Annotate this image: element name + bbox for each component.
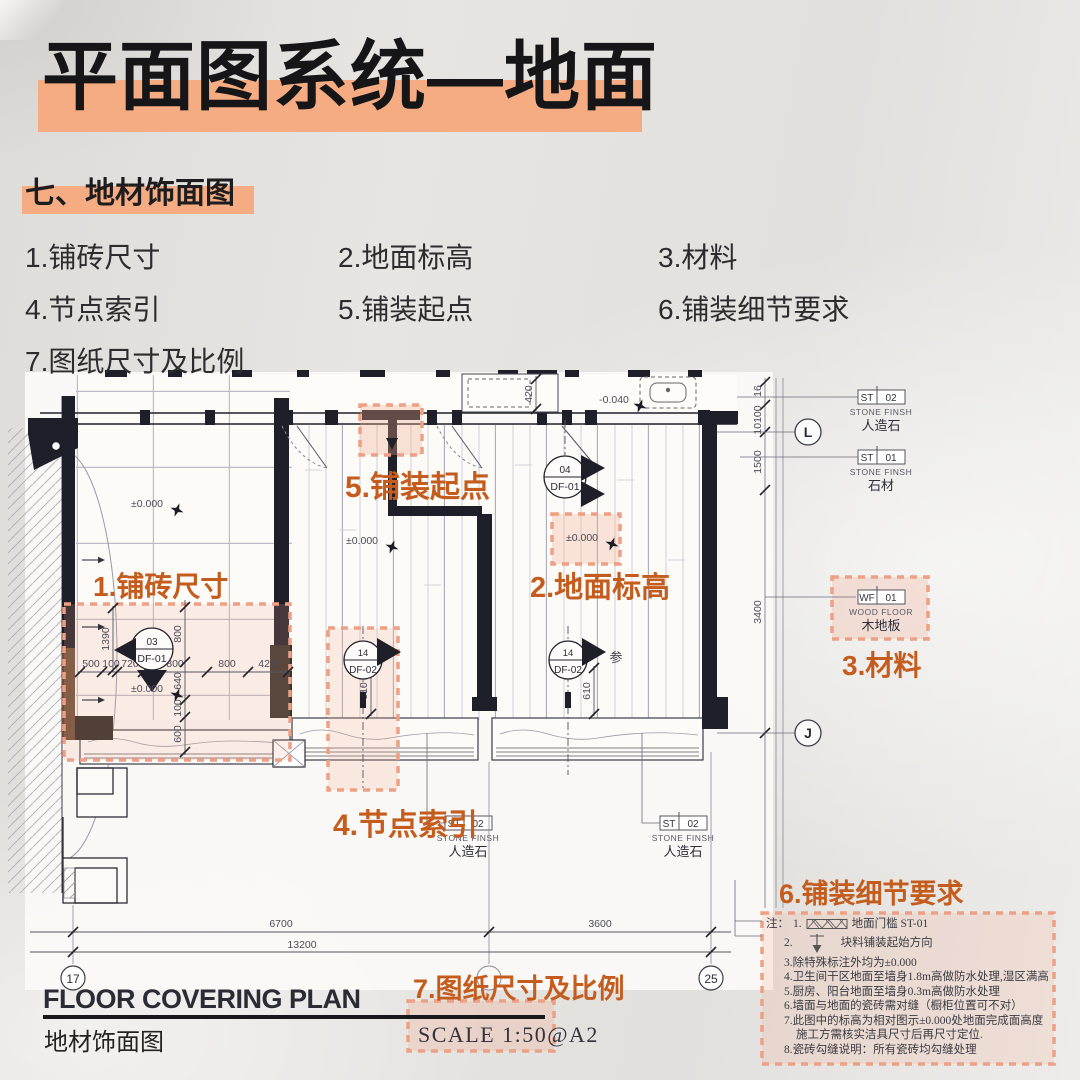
note-line: 5.厨房、阳台地面至墙身0.3m高做防水处理 [784, 985, 1054, 1000]
svg-text:1500: 1500 [752, 450, 764, 474]
svg-text:6700: 6700 [269, 918, 293, 930]
drawing-scale: SCALE 1:50@A2 [418, 1022, 599, 1048]
svg-text:石材: 石材 [868, 478, 894, 493]
door-pivot [52, 442, 61, 451]
note-line: 8.瓷砖勾缝说明：所有瓷砖均勾缝处理 [784, 1043, 1054, 1058]
svg-text:DF-01: DF-01 [137, 653, 166, 665]
note-item-1: 注： 1. 地面门槛 ST-01 [766, 917, 1054, 932]
slide: { "colors": { "highlight": "#f6ac82", "a… [0, 0, 1080, 1080]
svg-text:100: 100 [172, 699, 184, 717]
svg-text:02: 02 [687, 819, 699, 830]
svg-text:STONE FINSH: STONE FINSH [652, 833, 715, 843]
note-1-text: 地面门槛 ST-01 [852, 917, 929, 932]
svg-text:800: 800 [172, 625, 184, 643]
note-2-text: 块料铺装起始方向 [841, 936, 933, 951]
tag-st01: ST 01 STONE FINSH 石材 [850, 446, 913, 493]
svg-text:16: 16 [752, 385, 764, 397]
paving-direction-arrow-icon [797, 933, 837, 955]
legend-item-7: 7.图纸尺寸及比例 [25, 340, 244, 380]
annotation-material: 3.材料 [842, 644, 921, 684]
svg-text:L: L [804, 424, 813, 440]
legend-item-2: 2.地面标高 [338, 236, 473, 276]
svg-text:DF-02: DF-02 [349, 665, 377, 676]
svg-text:3600: 3600 [588, 918, 612, 930]
svg-text:10100: 10100 [752, 405, 764, 434]
svg-text:25: 25 [704, 972, 718, 986]
annotation-paving-start: 5.铺装起点 [345, 462, 490, 506]
annotation-sheet-scale: 7.图纸尺寸及比例 [413, 967, 625, 1006]
svg-text:01: 01 [885, 453, 897, 464]
note-line-continuation: 施工方需核实洁具尺寸后再尺寸定位. [796, 1028, 1054, 1043]
svg-text:14: 14 [563, 648, 574, 659]
svg-text:640: 640 [172, 672, 184, 690]
svg-text:人造石: 人造石 [663, 844, 702, 859]
sill-right [492, 718, 703, 760]
svg-text:WF: WF [859, 593, 875, 604]
note-line: 7.此图中的标高为相对图示±0.000处地面完成面高度 [784, 1014, 1054, 1029]
note-line: 4.卫生间干区地面至墙身1.8m高做防水处理,湿区满高 [784, 970, 1054, 985]
section-title: 七、地材饰面图 [25, 168, 235, 212]
svg-text:DF-01: DF-01 [550, 481, 579, 493]
svg-text:500: 500 [82, 658, 100, 670]
svg-text:参: 参 [609, 650, 622, 665]
page-title: 平面图系统—地面 [42, 40, 658, 116]
svg-text:03: 03 [146, 637, 158, 648]
svg-text:ST: ST [861, 393, 874, 404]
legend-item-3: 3.材料 [658, 236, 737, 276]
svg-text:13200: 13200 [287, 939, 316, 951]
annotation-detail-req: 6.铺装细节要求 [779, 872, 964, 911]
legend-item-6: 6.铺装细节要求 [658, 288, 849, 328]
svg-text:ST: ST [663, 819, 676, 830]
tag-st02-top: ST 02 STONE FINSH 人造石 [850, 386, 913, 433]
note-2-number: 2. [784, 936, 793, 951]
svg-text:±0.000: ±0.000 [131, 498, 163, 510]
notes-block: 注： 1. 地面门槛 ST-01 2. 块料铺装起始方向 3.除特殊标注外均为±… [766, 917, 1054, 1057]
svg-text:14: 14 [358, 648, 369, 659]
legend-item-1: 1.铺砖尺寸 [25, 236, 160, 276]
legend-item-4: 4.节点索引 [25, 288, 160, 328]
svg-text:ST: ST [861, 453, 874, 464]
svg-text:420: 420 [258, 658, 276, 670]
grid-bubble-L: L [795, 419, 821, 445]
note-item-2: 2. 块料铺装起始方向 [784, 932, 1054, 956]
svg-text:STONE FINSH: STONE FINSH [850, 467, 913, 477]
title-rule [43, 1015, 545, 1019]
svg-text:人造石: 人造石 [861, 418, 900, 433]
svg-text:01: 01 [885, 593, 897, 604]
annotation-node-index: 4.节点索引 [333, 800, 478, 844]
annotation-tile-size: 1.铺砖尺寸 [93, 565, 228, 605]
grid-bubble-25: 25 [699, 966, 723, 990]
legend-item-5: 5.铺装起点 [338, 288, 473, 328]
svg-text:800: 800 [218, 658, 236, 670]
svg-text:610: 610 [581, 682, 593, 700]
svg-text:J: J [804, 725, 812, 741]
svg-text:木地板: 木地板 [861, 618, 900, 633]
svg-text:STONE FINSH: STONE FINSH [850, 407, 913, 417]
svg-text:±0.000: ±0.000 [566, 532, 598, 544]
drawing-title-en: FLOOR COVERING PLAN [43, 984, 361, 1015]
svg-text:02: 02 [885, 393, 897, 404]
svg-text:04: 04 [559, 465, 571, 476]
svg-text:3400: 3400 [752, 600, 764, 624]
note-line: 6.墙面与地面的瓷砖需对缝（橱柜位置可不对） [784, 999, 1054, 1014]
svg-text:±0.000: ±0.000 [131, 683, 163, 695]
note-line: 3.除特殊标注外均为±0.000 [784, 956, 1054, 971]
svg-text:WOOD FLOOR: WOOD FLOOR [849, 607, 913, 617]
threshold-hatch-icon [806, 918, 848, 930]
svg-text:±0.000: ±0.000 [346, 535, 378, 547]
svg-text:DF-02: DF-02 [554, 665, 582, 676]
svg-text:人造石: 人造石 [448, 844, 487, 859]
svg-text:-0.040: -0.040 [599, 394, 629, 406]
svg-text:100: 100 [102, 658, 120, 670]
svg-text:420: 420 [523, 385, 535, 403]
grid-bubble-J: J [795, 720, 821, 746]
drawing-title-zh: 地材饰面图 [44, 1022, 164, 1057]
svg-text:600: 600 [172, 725, 184, 743]
note-1-number: 1. [793, 917, 802, 932]
notes-prefix: 注： [766, 917, 789, 932]
annotation-floor-level: 2.地面标高 [530, 564, 670, 606]
svg-text:1390: 1390 [100, 627, 112, 651]
